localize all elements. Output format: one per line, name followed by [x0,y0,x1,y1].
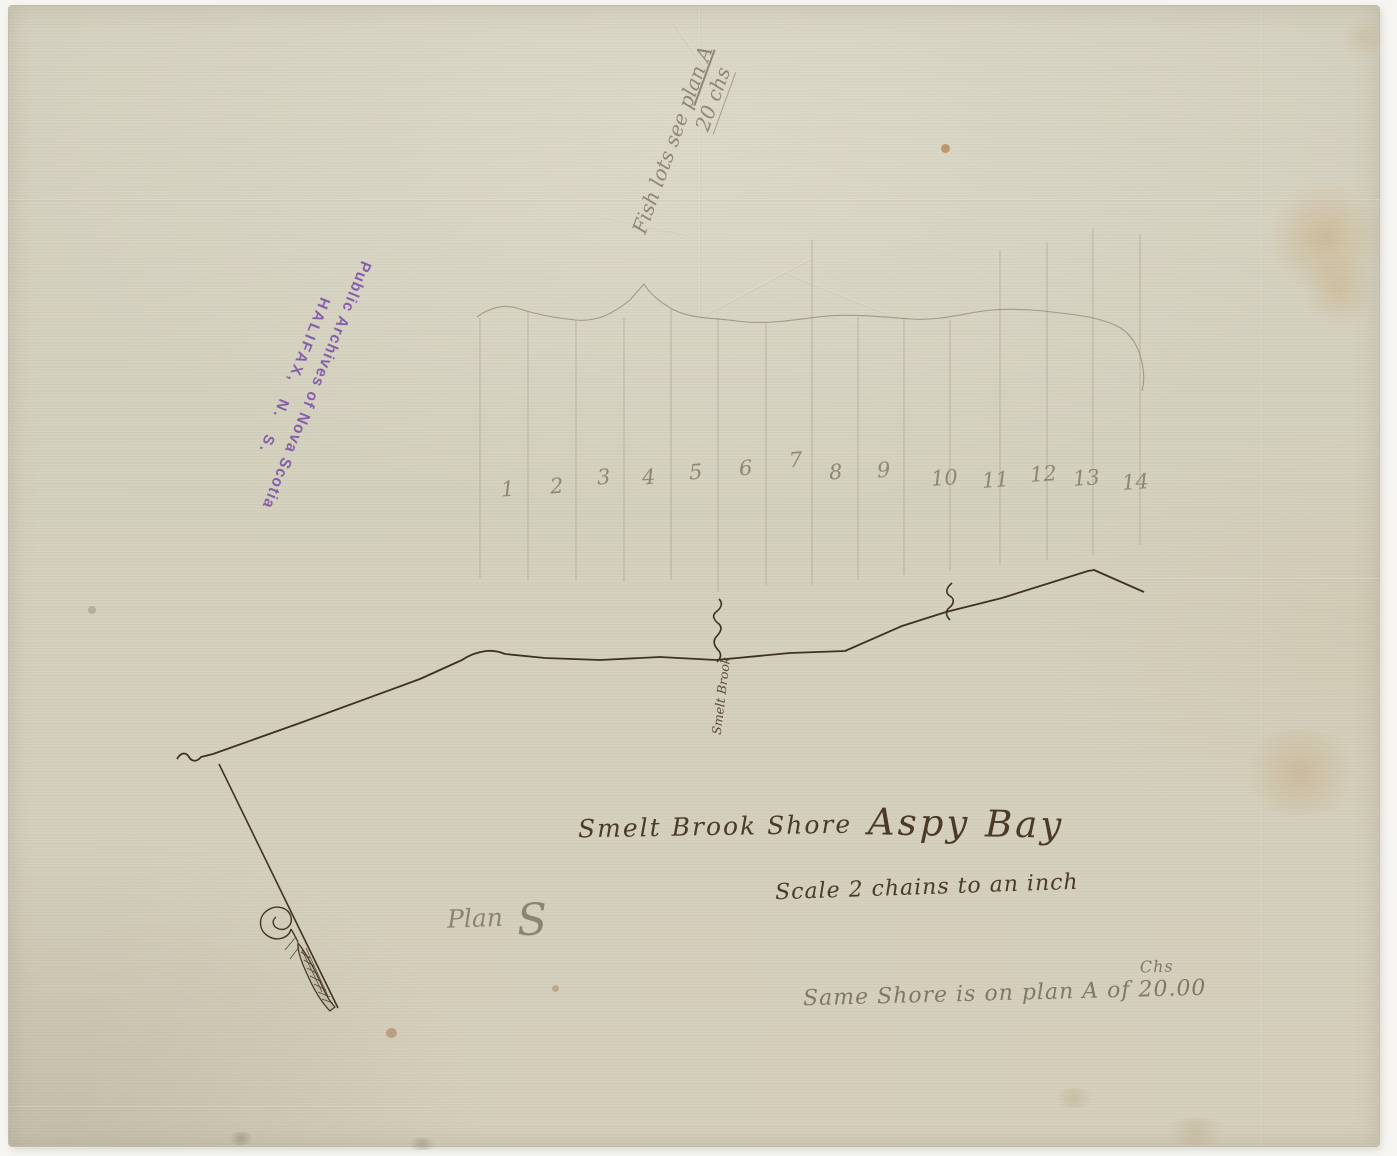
same-shore-superscript: Chs [1140,957,1174,977]
lot-number: 7 [788,448,803,473]
lot-number: 5 [688,460,703,485]
lot-number: 6 [738,456,753,481]
lot-number: 4 [641,465,656,490]
same-shore-value: 20.00 [1138,976,1207,1003]
lot-number: 12 [1029,461,1057,487]
lot-number: 2 [549,474,564,499]
flourish-spiral [261,907,292,939]
lot-number: 1 [500,477,515,502]
lot-number: 10 [930,465,958,491]
brook-squiggle [946,583,953,620]
bay-title: Aspy Bay [868,800,1065,846]
rear-boundary-path [477,284,1144,391]
side-boundary-line [219,764,338,1008]
lot-number: 9 [876,458,891,483]
shore-title: Smelt Brook Shore [578,810,853,844]
lot-number: 13 [1072,465,1100,491]
lot-boundary-lines [480,228,1140,592]
lot-number: 14 [1121,469,1149,495]
lot-number: 11 [981,467,1009,493]
flourish-tail [291,929,298,942]
plan-word: Plan [447,903,504,934]
plan-label: PlanS [447,901,548,933]
lot-number: 8 [828,460,843,485]
shoreline-path [177,570,1144,761]
scanned-map-page: Public Archives of Nova Scotia HALIFAX, … [0,0,1397,1156]
lot-number: 3 [596,465,611,490]
plan-letter: S [516,894,548,946]
